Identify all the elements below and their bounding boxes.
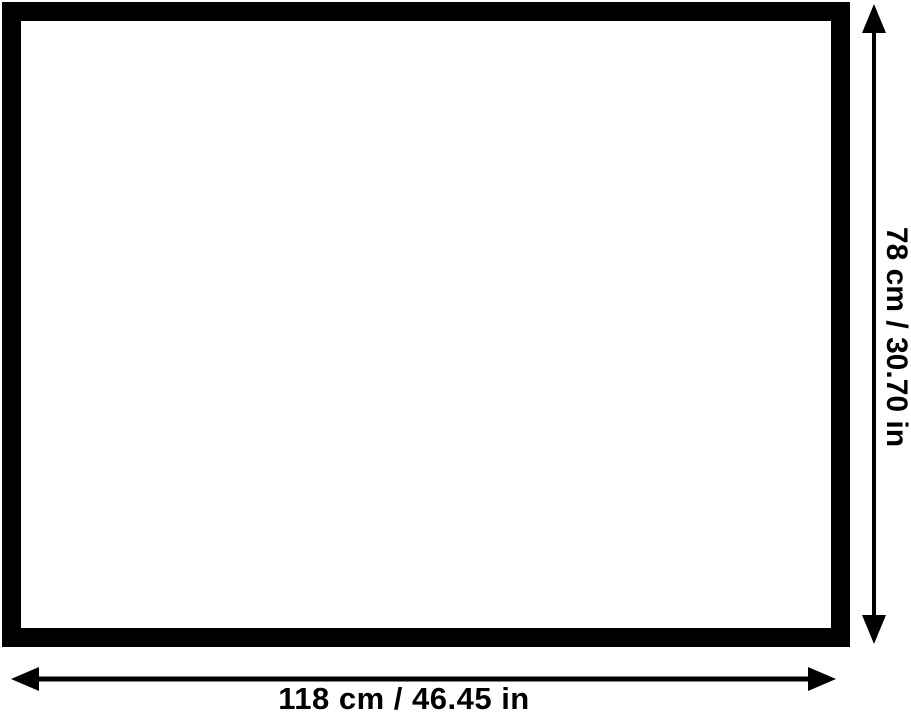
arrowhead-down-icon bbox=[862, 615, 886, 644]
arrowhead-left-icon bbox=[11, 667, 39, 691]
board-frame bbox=[2, 2, 850, 647]
height-dimension-label: 78 cm / 30.70 in bbox=[879, 217, 911, 457]
dimension-diagram: 78 cm / 30.70 in 118 cm / 46.45 in bbox=[0, 0, 911, 713]
arrowhead-up-icon bbox=[862, 4, 886, 33]
arrowhead-right-icon bbox=[808, 667, 836, 691]
width-dimension-label: 118 cm / 46.45 in bbox=[244, 681, 564, 713]
